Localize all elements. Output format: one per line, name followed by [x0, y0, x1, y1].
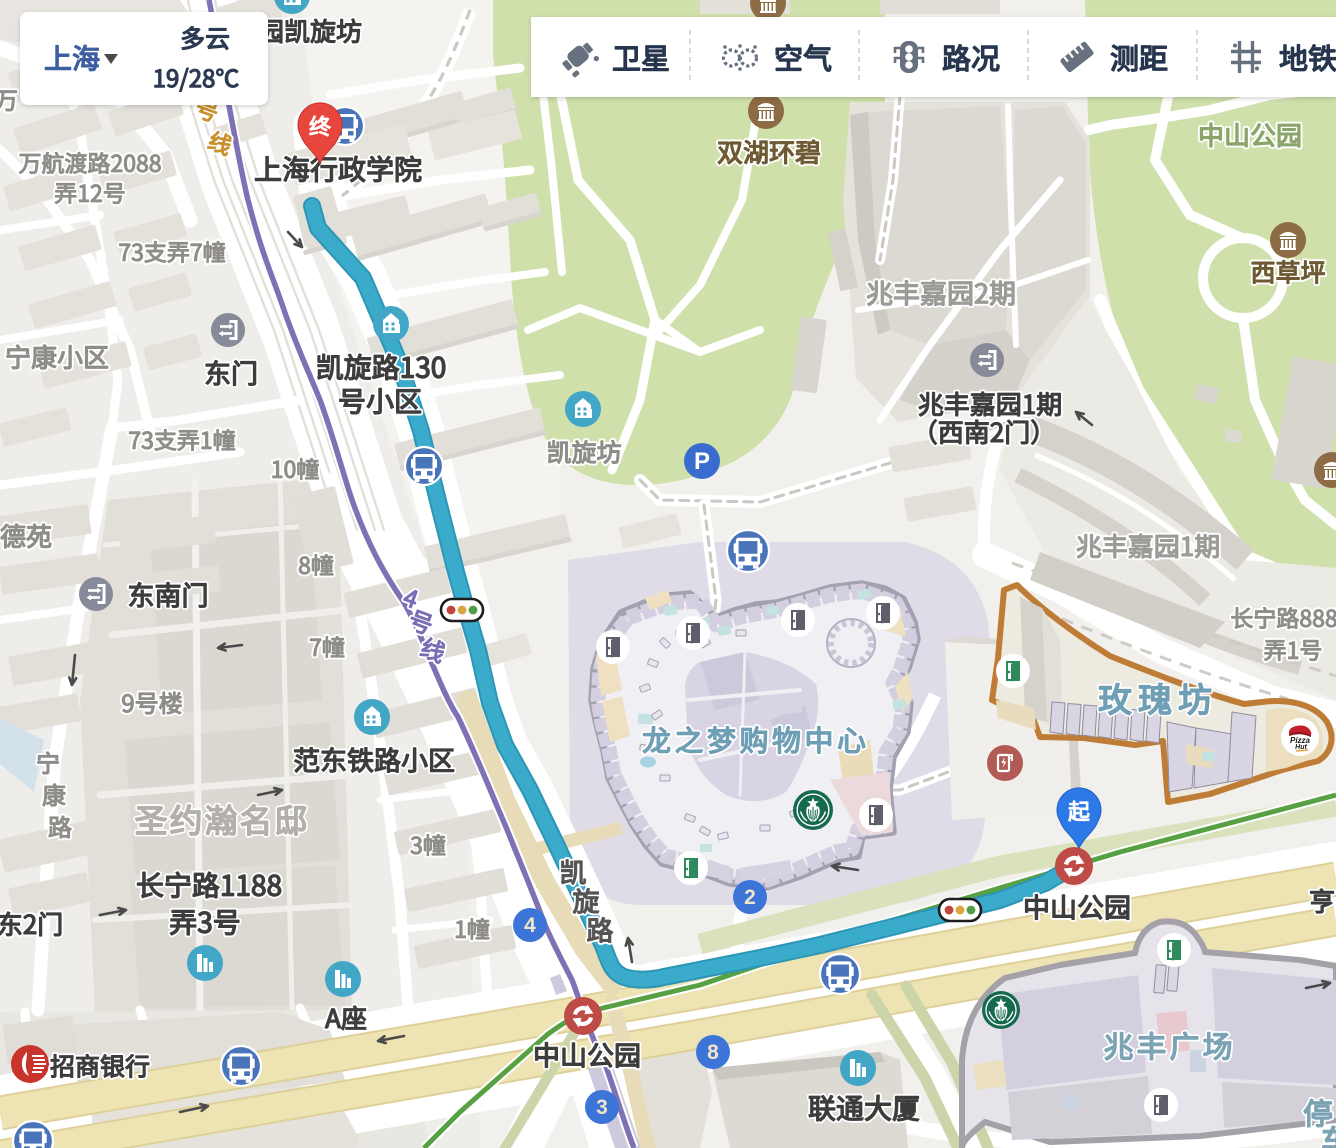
svg-text:3: 3	[596, 1096, 608, 1119]
svg-text:4: 4	[524, 914, 536, 937]
svg-text:2: 2	[744, 886, 756, 909]
svg-text:8: 8	[707, 1041, 719, 1064]
svg-text:P: P	[694, 448, 710, 475]
